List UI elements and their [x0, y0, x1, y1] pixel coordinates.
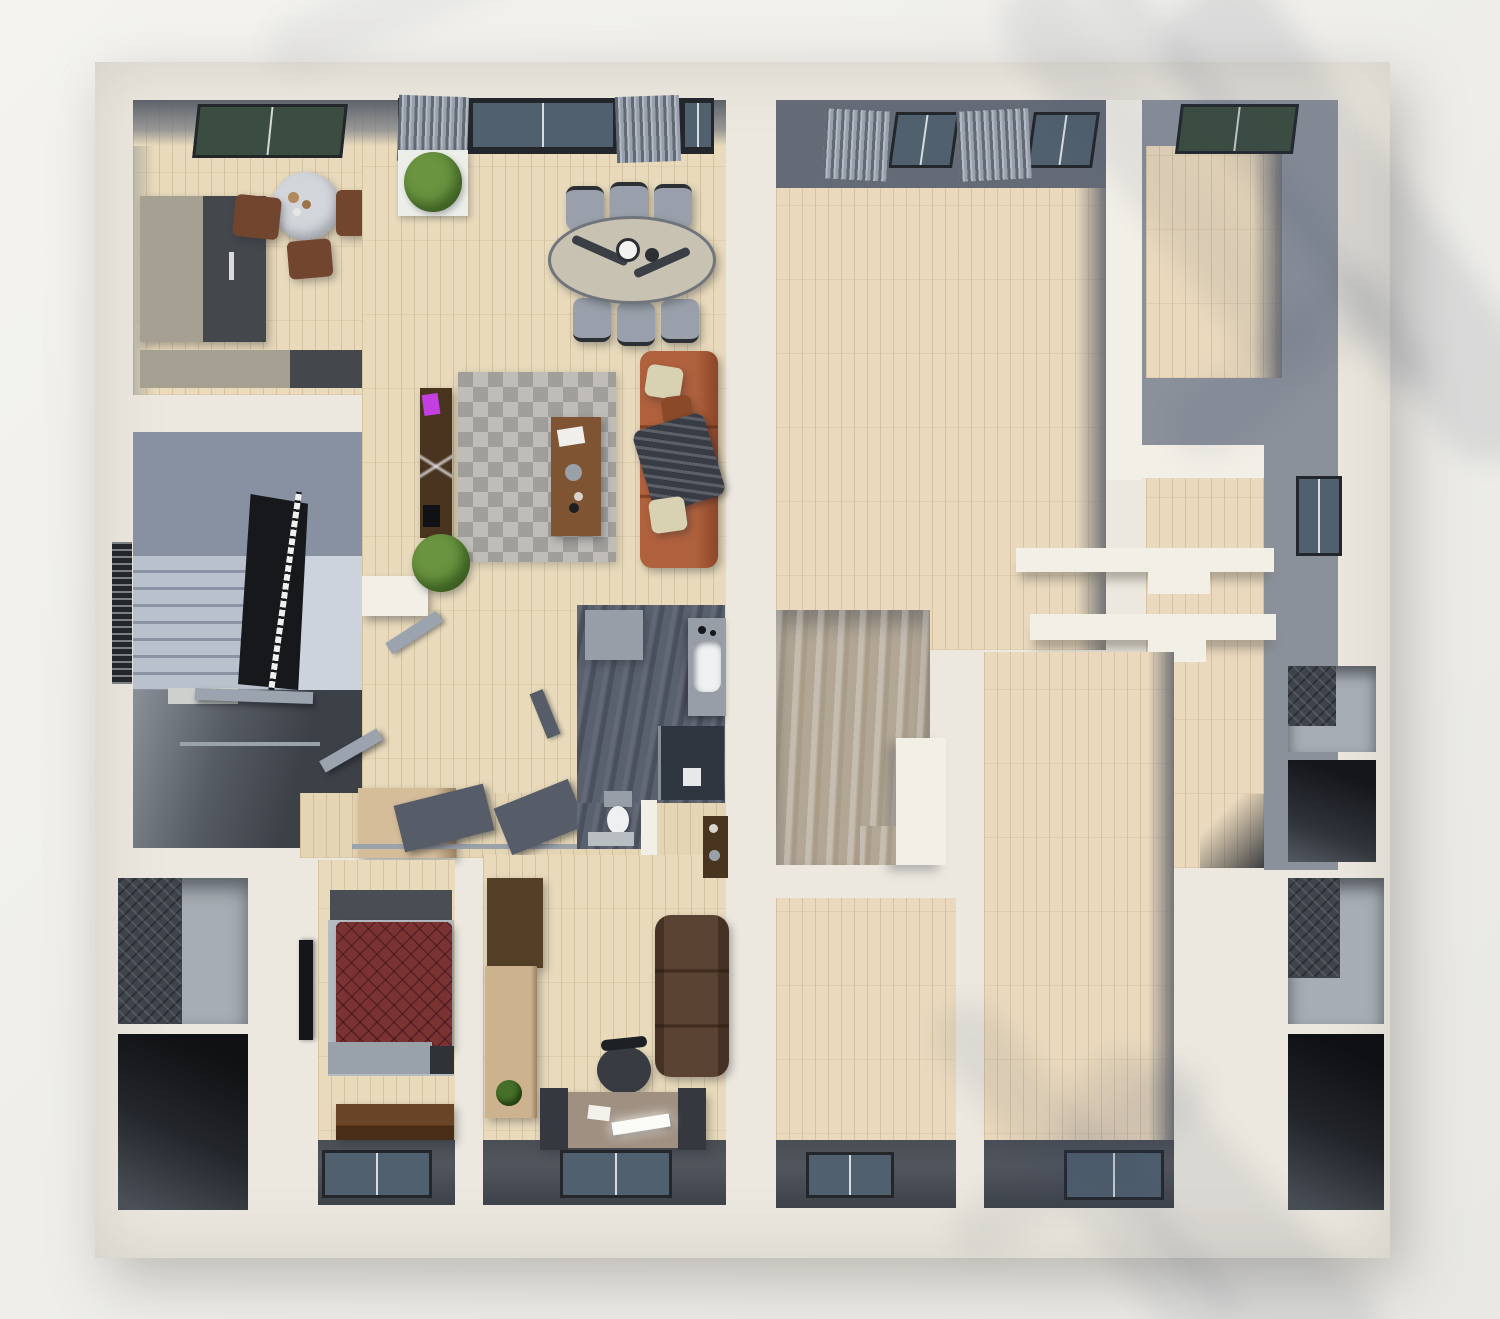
bathroom-west-wall-strip [641, 800, 657, 858]
shelf-item-bottle [709, 824, 718, 833]
office-task-chair [597, 1046, 651, 1094]
shelf-black-candleholder [423, 505, 440, 527]
skylight-room-east-face [1252, 146, 1282, 378]
great-room-east-wall-face [1076, 188, 1106, 650]
closet-west-dark [118, 1034, 248, 1210]
bathroom-shower [658, 726, 724, 800]
bathroom-east-partition [896, 738, 946, 865]
stair-landing-corner [295, 556, 362, 690]
nook-bench-end [290, 350, 366, 388]
bathroom-washbasin [693, 640, 721, 692]
east-roof-skylight [1175, 104, 1299, 154]
bed-foot-throw [328, 1042, 432, 1074]
niche-east-dark-upper [1288, 760, 1376, 862]
niche-east-dark-lower [1288, 1034, 1384, 1210]
shelf-purple-magazine [422, 393, 441, 416]
niche-east-tile-upper-wall [1288, 666, 1336, 726]
parapet-wall-lower [1030, 614, 1276, 640]
mid-room-corner-shadow [1200, 794, 1264, 868]
stair-west-window [112, 542, 132, 684]
bed-foot-pad [430, 1046, 454, 1074]
bathroom-toilet-tank [604, 791, 632, 807]
bathroom-faucet-dot-1 [698, 626, 706, 634]
bathroom-shower-seat [683, 768, 701, 786]
mid-room-side-window [1296, 476, 1342, 556]
closet-west-tile-wall [118, 878, 182, 1024]
nook-skylight [192, 104, 348, 158]
hallway-door-track [352, 844, 614, 849]
office-loveseat [655, 915, 729, 1077]
bedroom-chest-bench [336, 1104, 454, 1140]
room-south-east-b [984, 652, 1174, 1208]
parapet-upper-notch [1148, 570, 1210, 594]
dining-plate-large [616, 238, 640, 262]
bathroom-faucet-dot-2 [710, 630, 716, 636]
landing-door-track [180, 742, 320, 746]
floor-plan-scene [0, 0, 1500, 1319]
niche-east-tile-lower-wall [1288, 878, 1340, 978]
dining-chair-bottom-2 [617, 302, 655, 346]
sofa-pillow-cream-bottom [648, 496, 688, 535]
wall-great-skylight-divider [1106, 100, 1142, 480]
dining-chair-bottom-1 [573, 298, 611, 342]
shelf-item-candle [709, 850, 720, 861]
bathroom-toilet-bowl [607, 806, 629, 834]
living-curtain-right [615, 95, 681, 163]
nook-chair-left [232, 194, 282, 241]
coffee-table-cup [574, 492, 583, 501]
great-room-curtain-2 [956, 108, 1032, 182]
coffee-table-dark-cup [569, 503, 579, 513]
office-wardrobe-dark [487, 878, 543, 968]
office-south-window [560, 1150, 672, 1198]
coffee-table-bowl [565, 464, 582, 481]
bathroom-storage-cabinet [585, 610, 643, 660]
south-room-b-window [1064, 1150, 1164, 1200]
nook-chair-bottom [286, 238, 333, 280]
living-fern-plant [412, 534, 470, 592]
nook-sideboard-handle [229, 252, 234, 280]
bathroom-entry-step [588, 832, 634, 846]
bed-red-duvet [336, 922, 452, 1050]
living-north-window-1 [470, 100, 616, 150]
bedroom-south-window [322, 1150, 432, 1198]
bedroom-wall-tv [299, 940, 313, 1040]
bed-headboard [330, 890, 452, 922]
office-desk-end-right [678, 1088, 706, 1150]
dining-plate-small [645, 248, 659, 262]
living-corner-plant [404, 152, 462, 212]
office-plant [496, 1080, 522, 1106]
living-north-window-2 [682, 100, 714, 150]
dining-chair-bottom-3 [661, 299, 699, 343]
parapet-wall-upper [1016, 548, 1274, 572]
great-room-curtain-1 [822, 108, 892, 181]
nook-plate-1 [288, 192, 299, 203]
nook-plate-2 [302, 200, 311, 209]
great-room-window-2 [1026, 112, 1100, 168]
office-desk-paper [587, 1105, 611, 1122]
bathroom-east-niche [860, 826, 896, 865]
room-great-east [776, 188, 1106, 650]
office-desk-end-left [540, 1088, 568, 1150]
south-room-b-east-face [1148, 652, 1174, 1140]
south-room-a-window [806, 1152, 894, 1198]
great-room-window-1 [888, 112, 960, 168]
nook-plate-3 [293, 208, 301, 216]
